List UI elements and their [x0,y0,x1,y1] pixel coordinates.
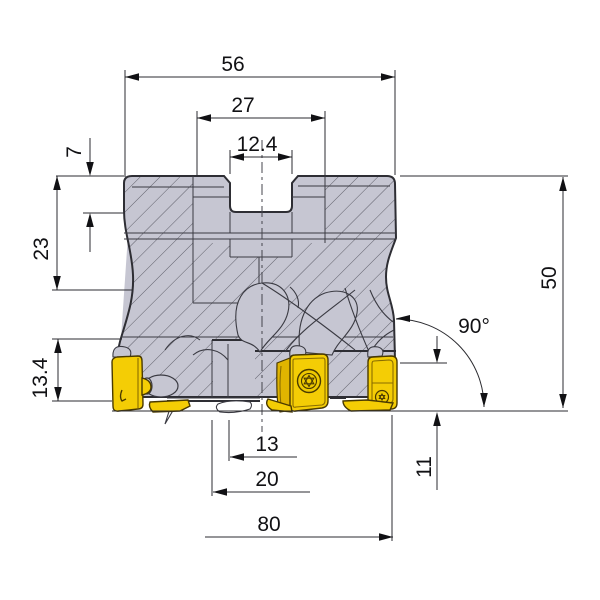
dim-label-11: 11 [413,456,436,478]
dim-56: 56 [125,53,395,81]
dim-13: 13 [230,433,297,461]
dim-20: 20 [213,468,310,496]
dim-11: 11 [413,336,441,490]
dim-label-12-4: 12.4 [237,133,278,156]
cutter-body [110,170,410,405]
dim-label-27: 27 [231,94,254,117]
technical-drawing: 56 27 12.4 7 23 [0,0,600,600]
dim-13-4: 13.4 [29,339,62,401]
dim-12-4: 12.4 [230,133,292,161]
dim-label-7: 7 [63,146,86,158]
dim-7: 7 [63,138,94,252]
dim-label-13: 13 [255,433,278,456]
dim-label-90deg: 90° [458,315,490,338]
dim-80: 80 [205,513,393,541]
pocket-tab-right [368,347,383,357]
dim-label-50: 50 [538,266,561,289]
drawing-canvas: 56 27 12.4 7 23 [0,0,600,600]
dim-27: 27 [197,94,325,122]
dim-23: 23 [30,176,61,290]
dim-label-13-4: 13.4 [29,357,52,398]
dim-label-80: 80 [257,513,280,536]
dim-90deg: 90° [396,315,490,407]
dim-label-56: 56 [221,53,244,76]
dim-label-20: 20 [255,468,278,491]
pocket-tab-left [113,346,131,357]
dim-label-23: 23 [30,237,53,260]
insert-flat-left [149,400,190,412]
insert-flat-right [343,400,393,411]
dim-50: 50 [538,177,567,408]
